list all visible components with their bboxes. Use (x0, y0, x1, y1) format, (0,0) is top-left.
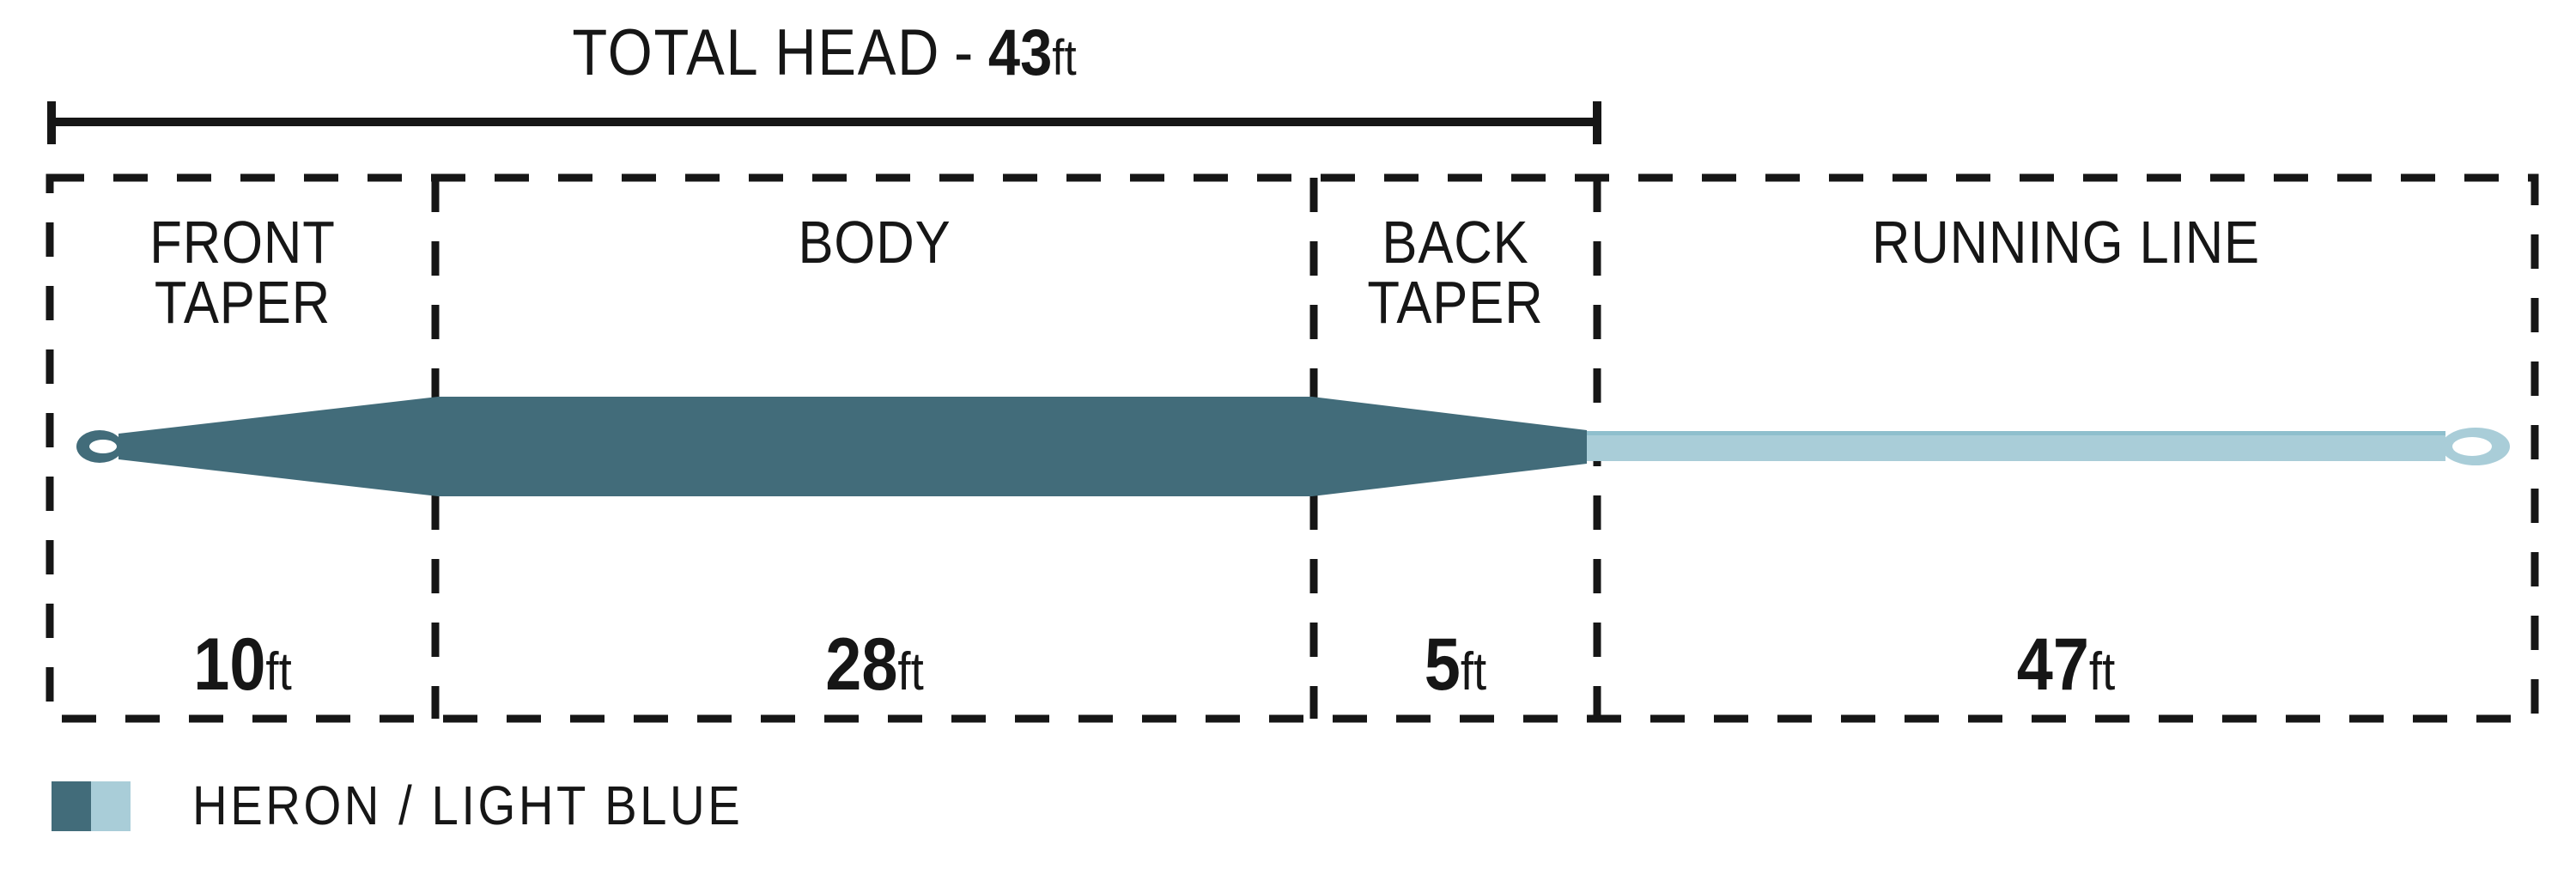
section-label-running-line: RUNNING LINE (1654, 212, 2479, 272)
total-head-bracket (52, 101, 1597, 144)
total-head-value: 43 (988, 16, 1052, 89)
length-unit: ft (1461, 642, 1486, 702)
total-head-separator: - (954, 16, 975, 89)
section-label-line: FRONT (73, 212, 412, 272)
front-loop-hole (89, 440, 117, 453)
length-value: 10 (193, 623, 265, 706)
section-label-line: TAPER (73, 272, 412, 332)
rear-loop-hole (2452, 437, 2492, 456)
legend-label: HERON / LIGHT BLUE (192, 775, 743, 835)
total-head-unit: ft (1052, 30, 1076, 86)
section-label-line: BACK (1331, 212, 1580, 272)
length-value: 47 (2017, 623, 2089, 706)
section-label-line: TAPER (1331, 272, 1580, 332)
section-length-front-taper: 10ft (73, 625, 412, 712)
head-shape (118, 397, 1587, 496)
fly-line-taper-diagram: TOTAL HEAD-43ft FRONT TAPER BODY BACK TA… (0, 0, 2576, 893)
total-head-label: TOTAL HEAD (572, 16, 940, 89)
section-length-running-line: 47ft (1654, 625, 2479, 712)
legend-swatch-light-blue (91, 781, 131, 831)
length-unit: ft (2089, 642, 2115, 702)
section-label-front-taper: FRONT TAPER (73, 212, 412, 332)
length-value: 5 (1425, 623, 1461, 706)
length-unit: ft (897, 642, 923, 702)
total-head-title: TOTAL HEAD-43ft (144, 19, 1504, 93)
length-unit: ft (265, 642, 291, 702)
section-label-line: RUNNING LINE (1654, 212, 2479, 272)
legend-swatch-heron (52, 781, 91, 831)
section-label-body: BODY (488, 212, 1261, 272)
running-line-shape (1587, 432, 2445, 461)
section-length-back-taper: 5ft (1331, 625, 1580, 712)
section-length-body: 28ft (488, 625, 1261, 712)
section-label-line: BODY (488, 212, 1261, 272)
running-line-top-edge (1587, 431, 2445, 435)
length-value: 28 (825, 623, 897, 706)
section-label-back-taper: BACK TAPER (1331, 212, 1580, 332)
legend-swatches (52, 781, 131, 831)
diagram-linework (0, 0, 2576, 893)
